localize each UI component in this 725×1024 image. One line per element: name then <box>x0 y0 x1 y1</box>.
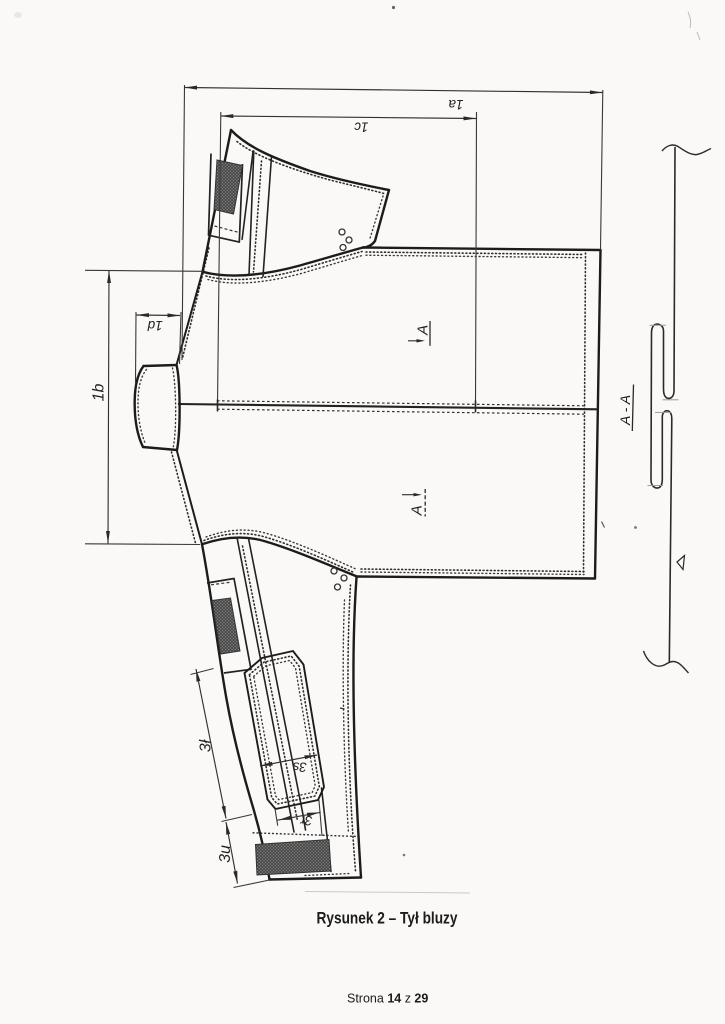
svg-text:3u: 3u <box>217 845 234 863</box>
svg-text:Rysunek 2 – Tył bluzy: Rysunek 2 – Tył bluzy <box>317 909 458 928</box>
svg-text:3s: 3s <box>292 760 307 775</box>
svg-text:A - A: A - A <box>617 395 633 426</box>
svg-text:1d: 1d <box>147 318 163 333</box>
svg-text:3ł: 3ł <box>198 739 215 752</box>
svg-text:1b: 1b <box>91 384 108 402</box>
svg-text:Strona 14 z 29: Strona 14 z 29 <box>347 992 428 1006</box>
svg-text:3r: 3r <box>300 813 313 828</box>
svg-text:A: A <box>415 325 432 336</box>
svg-text:1c: 1c <box>354 120 369 135</box>
svg-text:1a: 1a <box>448 97 464 112</box>
svg-text:A: A <box>408 505 425 516</box>
